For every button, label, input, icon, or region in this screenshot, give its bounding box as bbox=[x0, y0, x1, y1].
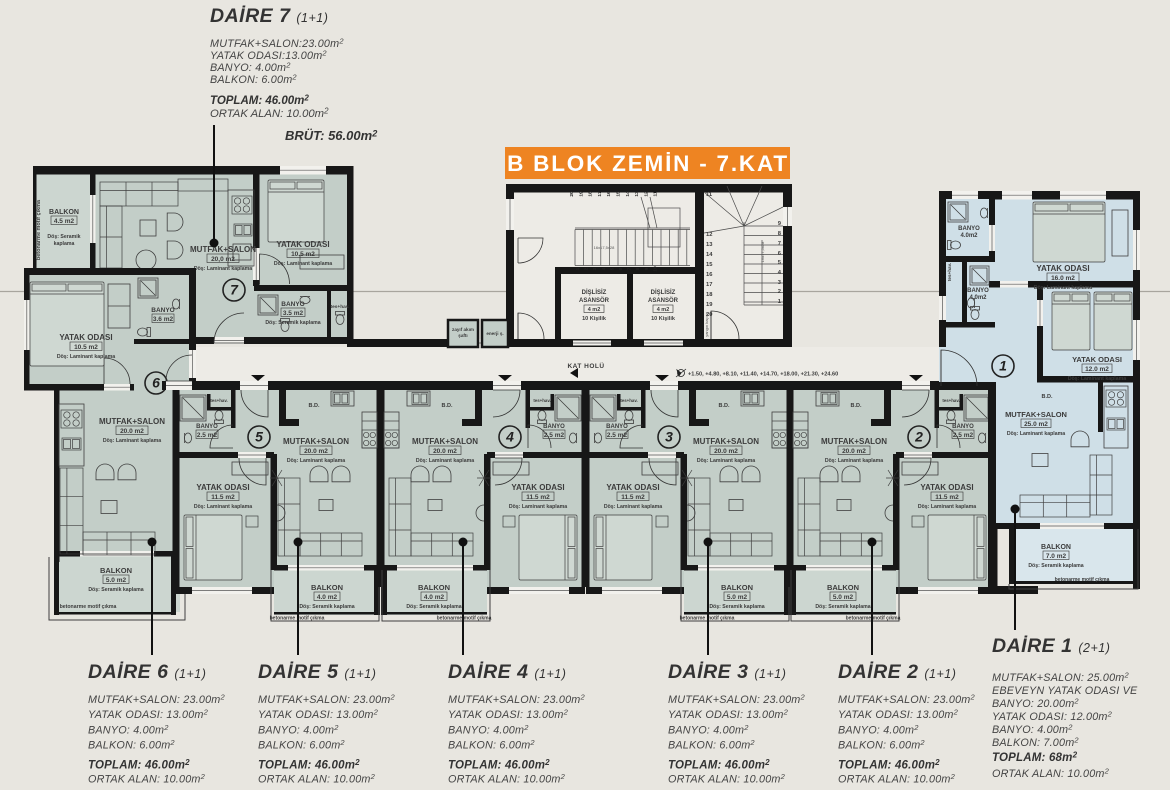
svg-text:Döş: Seramik kaplama: Döş: Seramik kaplama bbox=[406, 604, 461, 610]
svg-text:BANYO: BANYO bbox=[967, 288, 989, 294]
svg-text:MUTFAK+SALON: 23.00m2: MUTFAK+SALON: 23.00m2 bbox=[838, 693, 976, 707]
svg-text:YATAK ODASI: YATAK ODASI bbox=[59, 333, 112, 342]
svg-text:Döş: Seramik kaplama: Döş: Seramik kaplama bbox=[299, 604, 354, 610]
svg-text:BANYO: BANYO bbox=[196, 424, 218, 430]
svg-text:Döş: Laminant kaplama: Döş: Laminant kaplama bbox=[509, 504, 567, 510]
svg-text:ORTAK ALAN: 10.00m2: ORTAK ALAN: 10.00m2 bbox=[992, 767, 1110, 781]
svg-text:4.0m2: 4.0m2 bbox=[969, 295, 987, 301]
svg-text:BALKON: 6.00m2: BALKON: 6.00m2 bbox=[838, 738, 925, 752]
svg-text:MUTFAK+SALON: 23.00m2: MUTFAK+SALON: 23.00m2 bbox=[668, 693, 806, 707]
svg-text:20.0 m2: 20.0 m2 bbox=[304, 448, 328, 455]
svg-text:BALKON: BALKON bbox=[827, 583, 859, 592]
svg-text:Döş: Laminant kaplama: Döş: Laminant kaplama bbox=[287, 458, 345, 464]
svg-text:2: 2 bbox=[778, 289, 781, 295]
svg-text:2.5 m2: 2.5 m2 bbox=[607, 432, 628, 439]
svg-text:Döş: Seramik kaplama: Döş: Seramik kaplama bbox=[815, 604, 870, 610]
svg-text:7: 7 bbox=[778, 241, 781, 247]
svg-text:MUTFAK+SALON: MUTFAK+SALON bbox=[412, 437, 478, 446]
svg-text:11: 11 bbox=[706, 192, 713, 198]
svg-text:ORTAK ALAN: 10.00m2: ORTAK ALAN: 10.00m2 bbox=[448, 772, 566, 785]
svg-text:BALKON: BALKON bbox=[100, 566, 132, 575]
svg-text:15: 15 bbox=[706, 262, 713, 268]
svg-text:tes+hav.: tes+hav. bbox=[942, 398, 959, 403]
svg-text:10: 10 bbox=[652, 266, 658, 272]
svg-text:BANYO: BANYO bbox=[952, 424, 974, 430]
svg-text:TOPLAM: 46.00m2: TOPLAM: 46.00m2 bbox=[448, 758, 550, 772]
svg-text:YATAK ODASI: 13.00m2: YATAK ODASI: 13.00m2 bbox=[448, 708, 569, 722]
svg-text:TOPLAM: 46.00m2: TOPLAM: 46.00m2 bbox=[258, 758, 360, 772]
svg-text:BALKON: 6.00m2: BALKON: 6.00m2 bbox=[210, 73, 297, 87]
svg-text:BALKON: 6.00m2: BALKON: 6.00m2 bbox=[88, 738, 175, 752]
svg-text:YATAK ODASI: 12.00m2: YATAK ODASI: 12.00m2 bbox=[992, 710, 1113, 724]
svg-text:BANYO: 4.00m2: BANYO: 4.00m2 bbox=[448, 723, 529, 737]
svg-text:B.D.: B.D. bbox=[442, 403, 453, 409]
svg-text:TOPLAM: 46.00m2: TOPLAM: 46.00m2 bbox=[668, 758, 770, 772]
svg-text:YATAK ODASI: 13.00m2: YATAK ODASI: 13.00m2 bbox=[838, 708, 959, 722]
svg-text:17: 17 bbox=[706, 282, 712, 288]
svg-text:5.0 m2: 5.0 m2 bbox=[727, 594, 748, 601]
svg-text:şaftı: şaftı bbox=[458, 333, 467, 338]
svg-text:BALKON: BALKON bbox=[418, 583, 450, 592]
svg-text:10.5 m2: 10.5 m2 bbox=[291, 251, 315, 258]
svg-text:11: 11 bbox=[653, 191, 659, 196]
svg-text:4 m2: 4 m2 bbox=[657, 307, 670, 313]
svg-text:BANYO: BANYO bbox=[543, 424, 565, 430]
svg-text:YATAK ODASI: YATAK ODASI bbox=[1072, 355, 1122, 364]
svg-text:16.0 m2: 16.0 m2 bbox=[1051, 275, 1075, 282]
svg-text:5: 5 bbox=[609, 267, 615, 270]
svg-text:Döş: Seramik kaplama: Döş: Seramik kaplama bbox=[265, 320, 320, 326]
svg-text:BALKON: BALKON bbox=[311, 583, 343, 592]
svg-text:3.5 m2: 3.5 m2 bbox=[283, 310, 304, 317]
svg-text:BALKON: 6.00m2: BALKON: 6.00m2 bbox=[448, 738, 535, 752]
svg-text:B BLOK ZEMİN - 7.KAT: B BLOK ZEMİN - 7.KAT bbox=[507, 151, 789, 176]
svg-text:19: 19 bbox=[706, 302, 713, 308]
svg-text:13: 13 bbox=[706, 242, 713, 248]
svg-text:ORTAK ALAN: 10.00m2: ORTAK ALAN: 10.00m2 bbox=[88, 772, 206, 785]
svg-text:Döş: Seramik kaplama: Döş: Seramik kaplama bbox=[709, 604, 764, 610]
svg-text:1: 1 bbox=[575, 267, 581, 270]
svg-text:Döş: Laminant kaplama: Döş: Laminant kaplama bbox=[1007, 431, 1065, 437]
svg-text:Döş: Laminant kaplama: Döş: Laminant kaplama bbox=[1068, 376, 1126, 382]
svg-text:15: 15 bbox=[616, 191, 622, 197]
svg-text:7.0 m2: 7.0 m2 bbox=[1046, 553, 1067, 560]
svg-text:ORTAK ALAN: 10.00m2: ORTAK ALAN: 10.00m2 bbox=[668, 772, 786, 785]
svg-text:20.0 m2: 20.0 m2 bbox=[842, 448, 866, 455]
svg-text:betonarme motif çıkma: betonarme motif çıkma bbox=[36, 199, 42, 260]
svg-text:BANYO: 20.00m2: BANYO: 20.00m2 bbox=[992, 697, 1079, 711]
svg-text:BANYO: BANYO bbox=[606, 424, 628, 430]
svg-text:Döş: Laminant kaplama: Döş: Laminant kaplama bbox=[604, 504, 662, 510]
svg-text:MUTFAK+SALON: 23.00m2: MUTFAK+SALON: 23.00m2 bbox=[88, 693, 226, 707]
svg-text:TOPLAM: 46.00m2: TOPLAM: 46.00m2 bbox=[210, 94, 309, 108]
svg-text:enerji ş.: enerji ş. bbox=[486, 331, 503, 336]
svg-text:19: 19 bbox=[578, 191, 584, 197]
svg-text:4: 4 bbox=[601, 267, 607, 270]
svg-text:2.5 m2: 2.5 m2 bbox=[197, 432, 218, 439]
svg-text:ORTAK ALAN: 10.00m2: ORTAK ALAN: 10.00m2 bbox=[838, 772, 956, 785]
svg-text:MUTFAK+SALON: MUTFAK+SALON bbox=[99, 417, 165, 426]
svg-text:tes+hav.: tes+hav. bbox=[947, 263, 952, 281]
svg-text:11.5 m2: 11.5 m2 bbox=[526, 494, 550, 501]
svg-text:2: 2 bbox=[584, 267, 590, 270]
svg-text:BALKON: BALKON bbox=[721, 583, 753, 592]
svg-text:YATAK ODASI: YATAK ODASI bbox=[196, 483, 249, 492]
svg-text:16x17,5x28: 16x17,5x28 bbox=[760, 241, 765, 262]
svg-text:2.5 m2: 2.5 m2 bbox=[544, 432, 565, 439]
svg-text:DİŞLİSİZ: DİŞLİSİZ bbox=[582, 289, 607, 296]
svg-text:Döş: Laminant kaplama: Döş: Laminant kaplama bbox=[194, 504, 252, 510]
svg-text:5.0 m2: 5.0 m2 bbox=[833, 594, 854, 601]
svg-text:16: 16 bbox=[606, 191, 612, 197]
svg-text:BANYO: 4.00m2: BANYO: 4.00m2 bbox=[88, 723, 169, 737]
svg-text:BRÜT: 56.00m2: BRÜT: 56.00m2 bbox=[285, 128, 377, 143]
svg-text:Döş: Laminant kaplama: Döş: Laminant kaplama bbox=[1034, 285, 1092, 291]
svg-text:B.D.: B.D. bbox=[309, 403, 320, 409]
svg-text:2: 2 bbox=[914, 429, 923, 445]
svg-text:Döş: Laminant kaplama: Döş: Laminant kaplama bbox=[697, 458, 755, 464]
svg-text:YATAK ODASI: 13.00m2: YATAK ODASI: 13.00m2 bbox=[258, 708, 379, 722]
svg-text:20: 20 bbox=[569, 191, 575, 197]
svg-text:12.0 m2: 12.0 m2 bbox=[1085, 366, 1109, 373]
svg-text:4.0 m2: 4.0 m2 bbox=[424, 594, 445, 601]
svg-text:11.5 m2: 11.5 m2 bbox=[935, 494, 959, 501]
svg-text:Döş: Laminant kaplama: Döş: Laminant kaplama bbox=[918, 504, 976, 510]
svg-text:BALKON: BALKON bbox=[1041, 544, 1071, 551]
svg-text:18: 18 bbox=[588, 191, 594, 197]
svg-text:BALKON: 6.00m2: BALKON: 6.00m2 bbox=[668, 738, 755, 752]
svg-text:BALKON: 7.00m2: BALKON: 7.00m2 bbox=[992, 736, 1079, 750]
svg-text:MUTFAK+SALON: MUTFAK+SALON bbox=[693, 437, 759, 446]
svg-text:18: 18 bbox=[706, 292, 713, 298]
svg-text:EBEVEYN YATAK ODASI VE: EBEVEYN YATAK ODASI VE bbox=[992, 685, 1138, 697]
svg-text:YATAK ODASI: 13.00m2: YATAK ODASI: 13.00m2 bbox=[668, 708, 789, 722]
svg-text:betonarme motif çıkma: betonarme motif çıkma bbox=[1055, 577, 1110, 583]
svg-text:4 m2: 4 m2 bbox=[588, 307, 601, 313]
svg-text:YATAK ODASI: 13.00m2: YATAK ODASI: 13.00m2 bbox=[88, 708, 209, 722]
svg-text:11.5 m2: 11.5 m2 bbox=[211, 494, 235, 501]
svg-text:13: 13 bbox=[634, 191, 640, 197]
svg-text:Döş: Laminant kaplama: Döş: Laminant kaplama bbox=[825, 458, 883, 464]
svg-text:YATAK ODASI: YATAK ODASI bbox=[920, 483, 973, 492]
svg-text:BANYO: BANYO bbox=[958, 226, 980, 232]
svg-text:5: 5 bbox=[255, 429, 263, 445]
svg-text:tes+hav.: tes+hav. bbox=[331, 304, 350, 310]
svg-text:5.0 m2: 5.0 m2 bbox=[106, 577, 127, 584]
svg-text:+1.50, +4.80, +8.10, +11.40, +: +1.50, +4.80, +8.10, +11.40, +14.70, +18… bbox=[688, 372, 838, 378]
svg-text:4.0 m2: 4.0 m2 bbox=[317, 594, 338, 601]
svg-text:yangın kaçışı: yangın kaçışı bbox=[704, 313, 709, 337]
svg-text:MUTFAK+SALON: 25.00m2: MUTFAK+SALON: 25.00m2 bbox=[992, 671, 1130, 685]
svg-text:10 Kişilik: 10 Kişilik bbox=[582, 316, 607, 322]
svg-text:BANYO: 4.00m2: BANYO: 4.00m2 bbox=[210, 61, 291, 75]
svg-text:14: 14 bbox=[625, 191, 631, 197]
svg-text:Döş: Laminant kaplama: Döş: Laminant kaplama bbox=[57, 354, 115, 360]
svg-text:tes+hav.: tes+hav. bbox=[620, 398, 637, 403]
svg-text:BANYO: 4.00m2: BANYO: 4.00m2 bbox=[838, 723, 919, 737]
svg-text:YATAK ODASI:13.00m2: YATAK ODASI:13.00m2 bbox=[210, 49, 327, 63]
svg-text:YATAK ODASI: YATAK ODASI bbox=[276, 240, 329, 249]
svg-text:BANYO: 4.00m2: BANYO: 4.00m2 bbox=[668, 723, 749, 737]
svg-text:TOPLAM: 46.00m2: TOPLAM: 46.00m2 bbox=[88, 758, 190, 772]
svg-text:kaplama: kaplama bbox=[54, 241, 75, 247]
svg-text:tes+hav.: tes+hav. bbox=[210, 398, 227, 403]
svg-text:10.5 m2: 10.5 m2 bbox=[74, 344, 98, 351]
svg-text:KAT HOLÜ: KAT HOLÜ bbox=[567, 361, 604, 370]
svg-text:YATAK ODASI: YATAK ODASI bbox=[1036, 264, 1089, 273]
svg-text:Döş: Laminant kaplama: Döş: Laminant kaplama bbox=[103, 438, 161, 444]
svg-text:DİŞLİSİZ: DİŞLİSİZ bbox=[651, 289, 676, 296]
svg-text:TOPLAM: 68m2: TOPLAM: 68m2 bbox=[992, 751, 1078, 765]
svg-text:betonarme motif çıkma: betonarme motif çıkma bbox=[846, 616, 901, 622]
svg-text:betonarme motif çıkma: betonarme motif çıkma bbox=[60, 604, 117, 610]
svg-text:Döş: Seramik kaplama: Döş: Seramik kaplama bbox=[1028, 563, 1083, 569]
svg-text:BANYO: 4.00m2: BANYO: 4.00m2 bbox=[258, 723, 339, 737]
svg-text:Döş: Seramik: Döş: Seramik bbox=[47, 234, 80, 240]
svg-text:MUTFAK+SALON: 23.00m2: MUTFAK+SALON: 23.00m2 bbox=[448, 693, 586, 707]
svg-text:6: 6 bbox=[152, 375, 160, 391]
svg-text:6: 6 bbox=[618, 267, 624, 270]
svg-text:25.0 m2: 25.0 m2 bbox=[1024, 421, 1048, 428]
svg-text:MUTFAK+SALON: MUTFAK+SALON bbox=[1005, 410, 1067, 419]
svg-text:B.D.: B.D. bbox=[851, 403, 862, 409]
svg-text:TOPLAM: 46.00m2: TOPLAM: 46.00m2 bbox=[838, 758, 940, 772]
svg-text:Döş: Laminant kaplama: Döş: Laminant kaplama bbox=[194, 266, 252, 272]
svg-text:12: 12 bbox=[706, 232, 712, 238]
svg-text:7: 7 bbox=[230, 282, 239, 298]
svg-text:1: 1 bbox=[999, 358, 1007, 374]
svg-text:zayıf akım: zayıf akım bbox=[452, 327, 474, 332]
svg-text:4.5 m2: 4.5 m2 bbox=[54, 218, 75, 225]
svg-text:YATAK ODASI: YATAK ODASI bbox=[606, 483, 659, 492]
svg-text:YATAK ODASI: YATAK ODASI bbox=[511, 483, 564, 492]
svg-text:9: 9 bbox=[644, 267, 650, 270]
svg-text:BALKON: BALKON bbox=[49, 209, 79, 216]
svg-text:MUTFAK+SALON: MUTFAK+SALON bbox=[821, 437, 887, 446]
svg-text:8: 8 bbox=[635, 267, 641, 270]
svg-text:MUTFAK+SALON: 23.00m2: MUTFAK+SALON: 23.00m2 bbox=[258, 693, 396, 707]
svg-text:betonarme motif çıkma: betonarme motif çıkma bbox=[437, 616, 492, 622]
svg-text:BANYO: BANYO bbox=[281, 301, 304, 308]
svg-text:MUTFAK+SALON: MUTFAK+SALON bbox=[190, 245, 256, 254]
svg-text:ORTAK ALAN: 10.00m2: ORTAK ALAN: 10.00m2 bbox=[258, 772, 376, 785]
svg-text:20.0 m2: 20.0 m2 bbox=[433, 448, 457, 455]
svg-text:tes+hav.: tes+hav. bbox=[533, 398, 550, 403]
svg-text:11.5 m2: 11.5 m2 bbox=[621, 494, 645, 501]
svg-text:3: 3 bbox=[592, 267, 598, 270]
svg-text:16x17,5x28: 16x17,5x28 bbox=[594, 245, 615, 250]
svg-text:MUTFAK+SALON: MUTFAK+SALON bbox=[283, 437, 349, 446]
svg-text:B.D.: B.D. bbox=[719, 403, 730, 409]
svg-text:20,0 m2: 20,0 m2 bbox=[211, 256, 235, 263]
svg-text:16: 16 bbox=[706, 272, 713, 278]
svg-text:BANYO: BANYO bbox=[151, 307, 174, 314]
svg-text:4: 4 bbox=[505, 429, 514, 445]
svg-text:7: 7 bbox=[627, 267, 633, 270]
svg-text:10 Kişilik: 10 Kişilik bbox=[651, 316, 676, 322]
svg-text:Döş: Seramik kaplama: Döş: Seramik kaplama bbox=[88, 587, 143, 593]
svg-text:12: 12 bbox=[643, 191, 649, 197]
svg-text:17: 17 bbox=[597, 191, 603, 197]
svg-text:ORTAK ALAN: 10.00m2: ORTAK ALAN: 10.00m2 bbox=[210, 107, 329, 121]
svg-text:14: 14 bbox=[706, 252, 713, 258]
svg-text:ASANSÖR: ASANSÖR bbox=[579, 297, 610, 304]
svg-text:ASANSÖR: ASANSÖR bbox=[648, 297, 679, 304]
svg-text:20.0 m2: 20.0 m2 bbox=[120, 428, 144, 435]
svg-text:Döş: Laminant kaplama: Döş: Laminant kaplama bbox=[416, 458, 474, 464]
svg-text:4.0m2: 4.0m2 bbox=[960, 233, 978, 239]
svg-text:BALKON: 6.00m2: BALKON: 6.00m2 bbox=[258, 738, 345, 752]
svg-text:BANYO: 4.00m2: BANYO: 4.00m2 bbox=[992, 723, 1073, 737]
svg-text:3: 3 bbox=[665, 429, 673, 445]
svg-text:20.0 m2: 20.0 m2 bbox=[714, 448, 738, 455]
svg-text:2.5 m2: 2.5 m2 bbox=[953, 432, 974, 439]
svg-text:3.6 m2: 3.6 m2 bbox=[153, 316, 174, 323]
svg-text:Döş: Laminant kaplama: Döş: Laminant kaplama bbox=[274, 261, 332, 267]
svg-text:B.D.: B.D. bbox=[1042, 394, 1053, 400]
